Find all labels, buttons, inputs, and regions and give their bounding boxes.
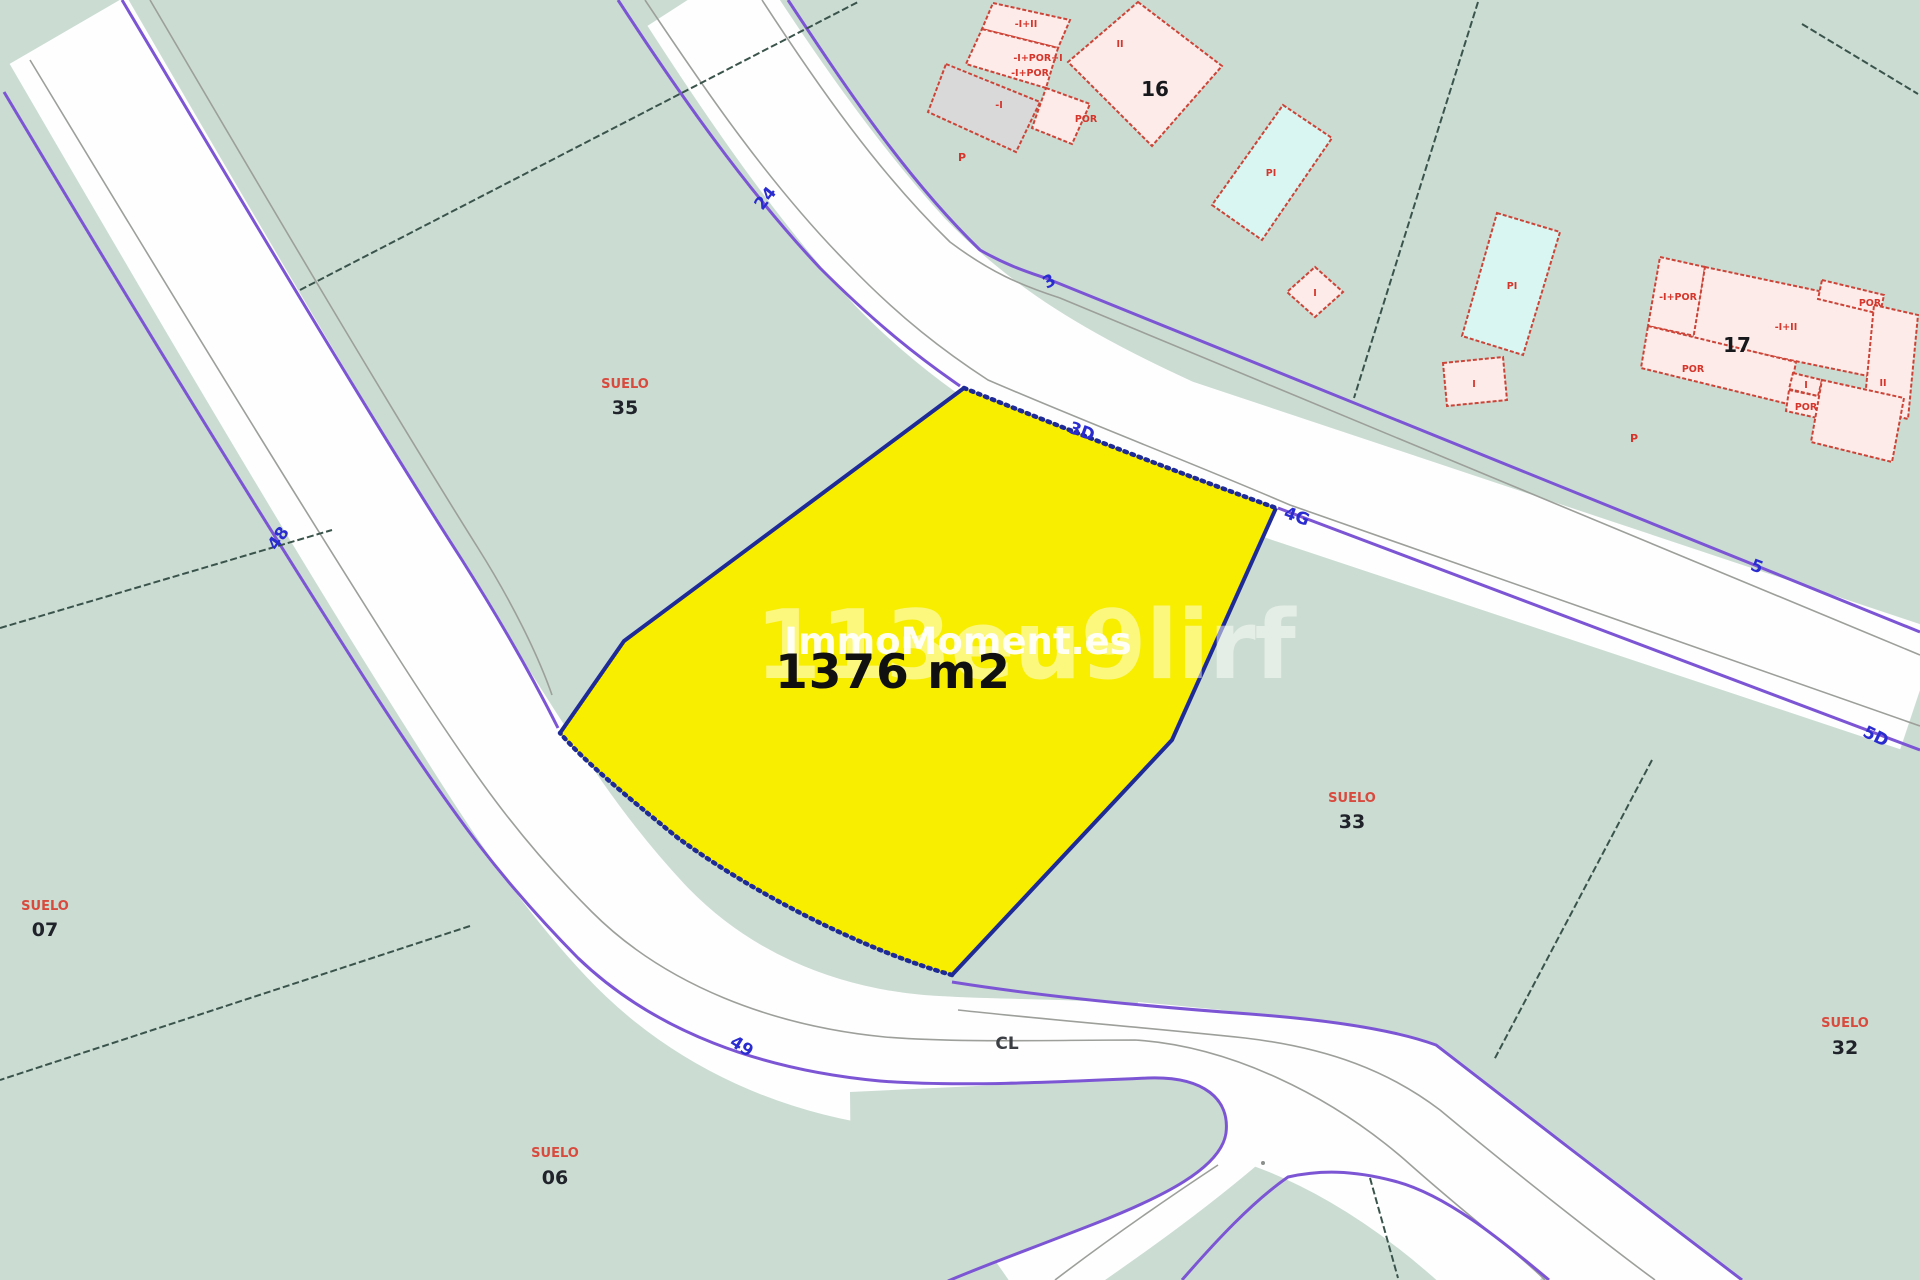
building-floor-label: POR	[1075, 114, 1098, 125]
pool-label: PI	[1266, 168, 1277, 179]
building-floor-label: -I+II	[1775, 322, 1798, 333]
building-floor-label: POR	[1859, 298, 1882, 309]
building-17-number: 17	[1723, 333, 1751, 357]
building-floor-label: -I+POR	[1011, 68, 1049, 79]
parcel-06-suelo-label: SUELO	[531, 1146, 579, 1161]
building-floor-label: I	[1804, 380, 1808, 391]
cadastral-map: -I+II -I+POR+I -I+POR II -I POR 16 P PI …	[0, 0, 1920, 1280]
building-floor-label: II	[1879, 378, 1886, 389]
building-floor-label: POR	[1795, 402, 1818, 413]
building-floor-label: II	[1116, 39, 1123, 50]
building-floor-label: -I+POR+I	[1013, 53, 1062, 64]
parcel-35-suelo-label: SUELO	[601, 377, 649, 392]
building-floor-label: POR	[1682, 364, 1705, 375]
parcel-p-label: P	[1630, 432, 1638, 445]
parcel-33-suelo-label: SUELO	[1328, 791, 1376, 806]
parcel-32-number: 32	[1832, 1037, 1858, 1059]
street-name-cl: CL	[995, 1034, 1018, 1054]
parcel-33-number: 33	[1339, 811, 1365, 833]
survey-dot	[1261, 1161, 1265, 1165]
parcel-06-number: 06	[542, 1167, 568, 1189]
parcel-32-suelo-label: SUELO	[1821, 1016, 1869, 1031]
building-floor-label: -I	[995, 100, 1002, 111]
outbuilding-label: I	[1313, 288, 1317, 299]
parcel-p-label: P	[958, 151, 966, 164]
parcel-35-number: 35	[612, 397, 638, 419]
pool-label: PI	[1507, 281, 1518, 292]
building-16-number: 16	[1141, 77, 1169, 101]
parcel-07-suelo-label: SUELO	[21, 899, 69, 914]
parcel-07-number: 07	[32, 919, 58, 941]
outbuilding-label: I	[1472, 379, 1476, 390]
plot-area-label: 1376 m2	[775, 645, 1011, 700]
building-floor-label: -I+II	[1015, 19, 1038, 30]
building-floor-label: -I+POR	[1659, 292, 1697, 303]
